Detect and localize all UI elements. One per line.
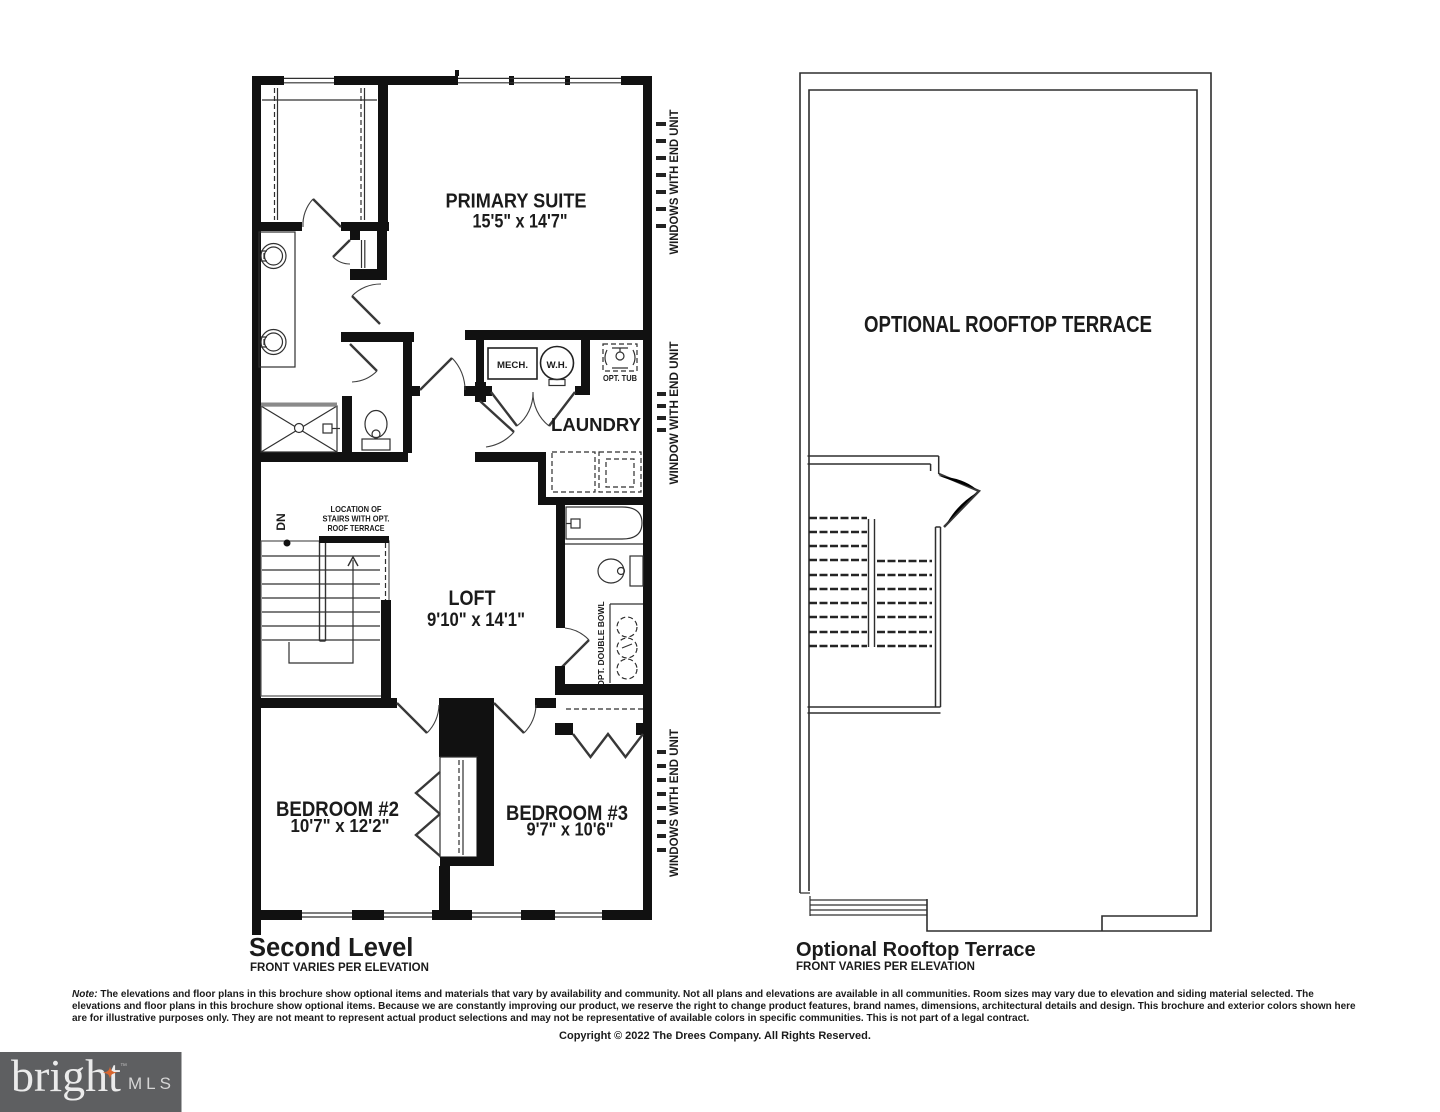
svg-text:W.H.: W.H. [547,360,568,371]
svg-text:bright: bright [11,1050,121,1101]
svg-text:9'10" x 14'1": 9'10" x 14'1" [427,609,525,631]
svg-text:LOFT: LOFT [449,586,496,610]
svg-text:elevations and floor plans in: elevations and floor plans in this broch… [72,1001,1356,1012]
svg-text:OPT. TUB: OPT. TUB [603,373,637,383]
svg-text:are for illustrative purposes: are for illustrative purposes only. They… [72,1013,1030,1024]
svg-text:OPTIONAL ROOFTOP TERRACE: OPTIONAL ROOFTOP TERRACE [864,311,1152,337]
svg-text:DN: DN [274,513,288,530]
svg-text:Second Level: Second Level [249,934,413,962]
svg-text:Copyright © 2022 The Drees Com: Copyright © 2022 The Drees Company. All … [559,1030,871,1042]
svg-text:OPT. DOUBLE BOWL: OPT. DOUBLE BOWL [596,601,606,686]
svg-text:STAIRS WITH OPT.: STAIRS WITH OPT. [323,514,390,524]
svg-text:WINDOW WITH END UNIT: WINDOW WITH END UNIT [669,342,681,485]
svg-text:FRONT VARIES PER ELEVATION: FRONT VARIES PER ELEVATION [250,962,429,974]
svg-text:PRIMARY SUITE: PRIMARY SUITE [446,190,587,213]
svg-text:™: ™ [120,1063,127,1070]
svg-text:LAUNDRY: LAUNDRY [551,415,641,435]
svg-text:MECH.: MECH. [497,360,528,371]
svg-text:10'7" x 12'2": 10'7" x 12'2" [291,815,390,836]
svg-text:Note: The elevations and floo: Note: The elevations and floor plans in … [72,989,1314,1000]
svg-text:15'5" x 14'7": 15'5" x 14'7" [473,212,568,233]
svg-text:WINDOWS WITH END UNIT: WINDOWS WITH END UNIT [669,729,681,877]
svg-text:MLS: MLS [128,1074,175,1093]
svg-text:LOCATION OF: LOCATION OF [331,504,382,514]
svg-text:Optional Rooftop Terrace: Optional Rooftop Terrace [796,939,1036,961]
svg-text:FRONT VARIES PER ELEVATION: FRONT VARIES PER ELEVATION [796,961,975,973]
svg-text:ROOF TERRACE: ROOF TERRACE [328,523,385,533]
svg-text:9'7" x 10'6": 9'7" x 10'6" [527,819,614,840]
svg-text:WINDOWS WITH END UNIT: WINDOWS WITH END UNIT [669,110,681,255]
